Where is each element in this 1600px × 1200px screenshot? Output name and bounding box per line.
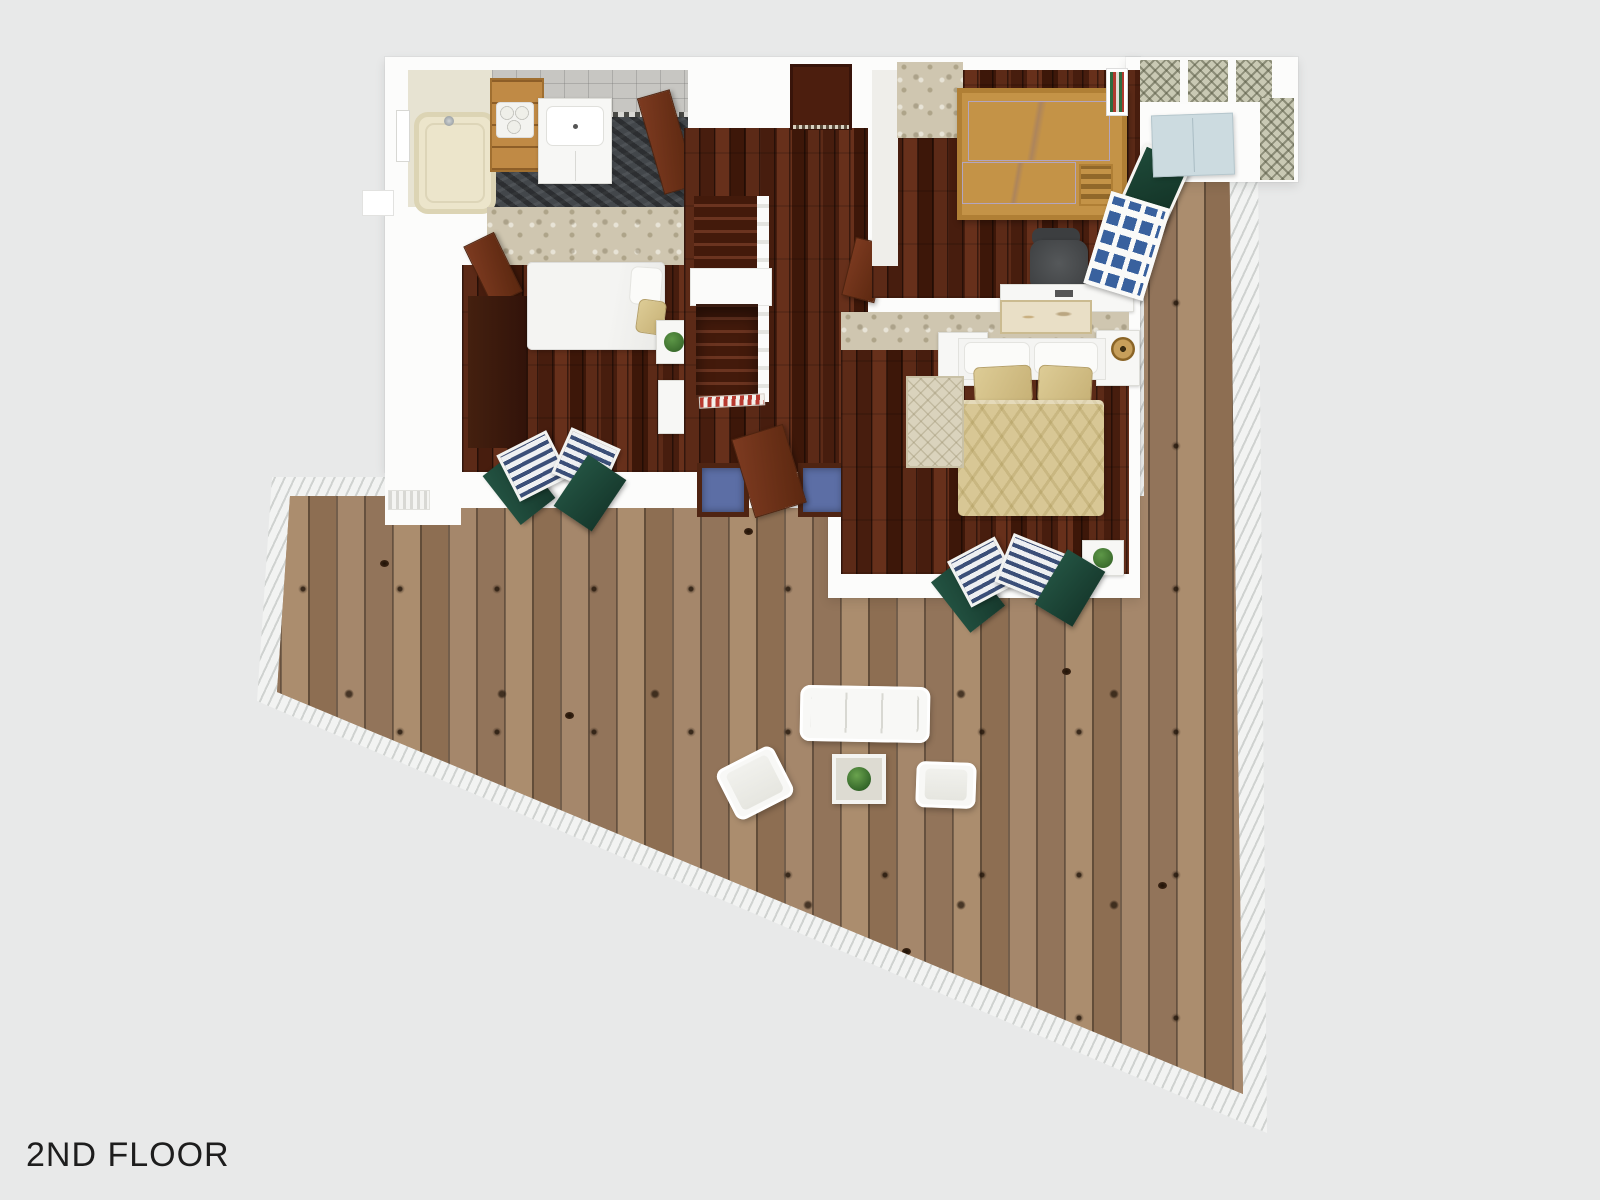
outdoor-armchair-right — [915, 761, 977, 809]
stairs-lower-flight — [696, 304, 758, 398]
deck-knot — [744, 528, 753, 535]
master-bed — [958, 338, 1104, 516]
master-rug — [906, 376, 964, 468]
outdoor-sofa — [800, 685, 931, 743]
bedroom1-carpet-band — [487, 207, 688, 267]
bathroom-window — [396, 110, 410, 162]
deck-knot — [650, 902, 659, 909]
stairs-landing — [690, 268, 772, 306]
left-wall-window — [362, 190, 394, 216]
bedroom2-wall-strip — [872, 70, 898, 266]
bunk-bed — [957, 88, 1127, 220]
master-duvet — [958, 400, 1104, 516]
deck-knot — [1062, 668, 1071, 675]
stairs-upper-flight — [694, 196, 758, 272]
balcony-lattice-top — [1140, 60, 1272, 102]
balcony-post — [1228, 58, 1236, 104]
desk-item — [1055, 290, 1073, 297]
floor-label: 2ND FLOOR — [26, 1136, 230, 1175]
wall-art — [1000, 300, 1092, 334]
bunk-bed-top-mattress — [968, 101, 1110, 161]
balcony-cabinet — [1151, 113, 1235, 178]
bathtub — [414, 112, 496, 214]
outdoor-coffee-table — [832, 754, 886, 804]
deck-knot — [462, 806, 471, 813]
balcony-lattice-right — [1260, 98, 1294, 180]
chimney — [790, 64, 852, 130]
wall-vent-grille — [388, 490, 430, 510]
bunk-bed-lower-mattress — [962, 162, 1076, 204]
bookshelf — [1106, 68, 1128, 116]
deck-knot — [565, 712, 574, 719]
balcony-post — [1180, 58, 1188, 104]
bedroom1-wardrobe — [468, 296, 528, 448]
floorplan-render: 2ND FLOOR — [0, 0, 1600, 1200]
bathtub-faucet — [444, 116, 454, 126]
towel-basket — [496, 102, 534, 138]
deck-knot — [380, 560, 389, 567]
bedroom2-carpet-band — [897, 62, 963, 138]
deck-knot — [1158, 882, 1167, 889]
bathroom-sink — [546, 106, 604, 146]
